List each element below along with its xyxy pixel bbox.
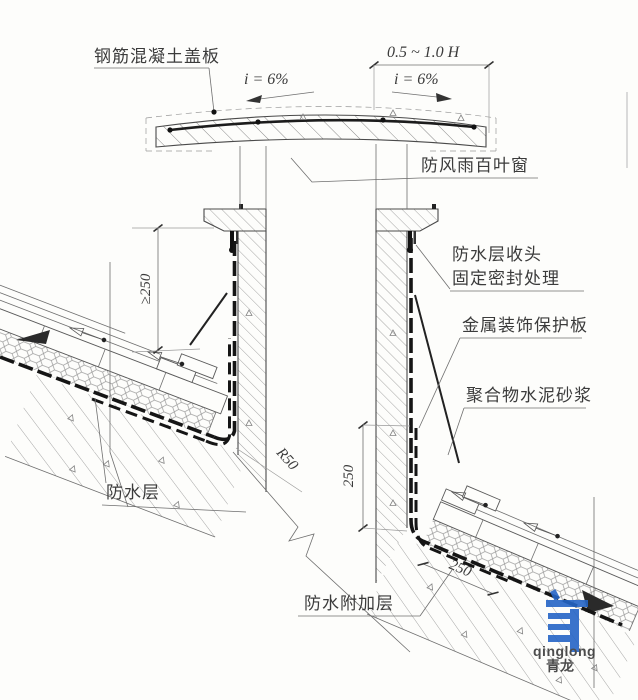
roof-assembly-right: 250	[367, 469, 638, 700]
cover-slab-text: 钢筋混凝土盖板	[94, 47, 220, 66]
label-cover-slab: 钢筋混凝土盖板	[94, 47, 220, 115]
waterproof-layer-text: 防水层	[106, 483, 160, 502]
metal-plate-right	[415, 295, 459, 463]
polymer-mortar-text: 聚合物水泥砂浆	[466, 386, 592, 405]
cover-slab	[146, 107, 496, 152]
head-text-2: 固定密封处理	[452, 269, 560, 288]
cap-beam-left	[204, 204, 266, 231]
waterproof-added-layer-text: 防水附加层	[304, 594, 394, 613]
wall-250-text: 250	[341, 464, 357, 487]
fastener-flag-icon	[523, 519, 561, 541]
head-text-1: 防水层收头	[452, 245, 542, 264]
louver-text: 防风雨百叶窗	[421, 156, 529, 175]
slope-left-text: i = 6%	[244, 71, 289, 88]
corner-radius-text: R50	[272, 444, 301, 474]
qinglong-cjk-text: 青龙	[546, 658, 574, 674]
arrow-left-icon	[246, 95, 262, 103]
label-louver: 防风雨百叶窗	[291, 156, 538, 182]
louver-opening	[240, 144, 407, 209]
qinglong-latin-text: qinglong	[533, 643, 596, 659]
metal-plate-left	[190, 293, 227, 345]
flashing-height-text: ≥250	[138, 273, 154, 304]
label-polymer-mortar: 聚合物水泥砂浆	[448, 386, 592, 455]
label-metal-plate: 金属装饰保护板	[419, 316, 588, 428]
arrow-right-icon	[436, 93, 452, 102]
slope-annotation-left: i = 6%	[244, 71, 314, 103]
label-membrane-head: 防水层收头 固定密封处理	[416, 245, 584, 291]
dim-flashing-height: ≥250	[132, 225, 214, 354]
shaft-wall-left	[238, 231, 266, 492]
detail-svg: 250	[0, 0, 638, 700]
slope-right-text: i = 6%	[394, 71, 439, 88]
construction-detail-drawing: 250	[0, 0, 638, 700]
metal-plate-text: 金属装饰保护板	[462, 316, 588, 335]
slope-annotation-right: i = 6%	[392, 71, 452, 102]
top-width-text: 0.5 ~ 1.0 H	[387, 44, 461, 61]
